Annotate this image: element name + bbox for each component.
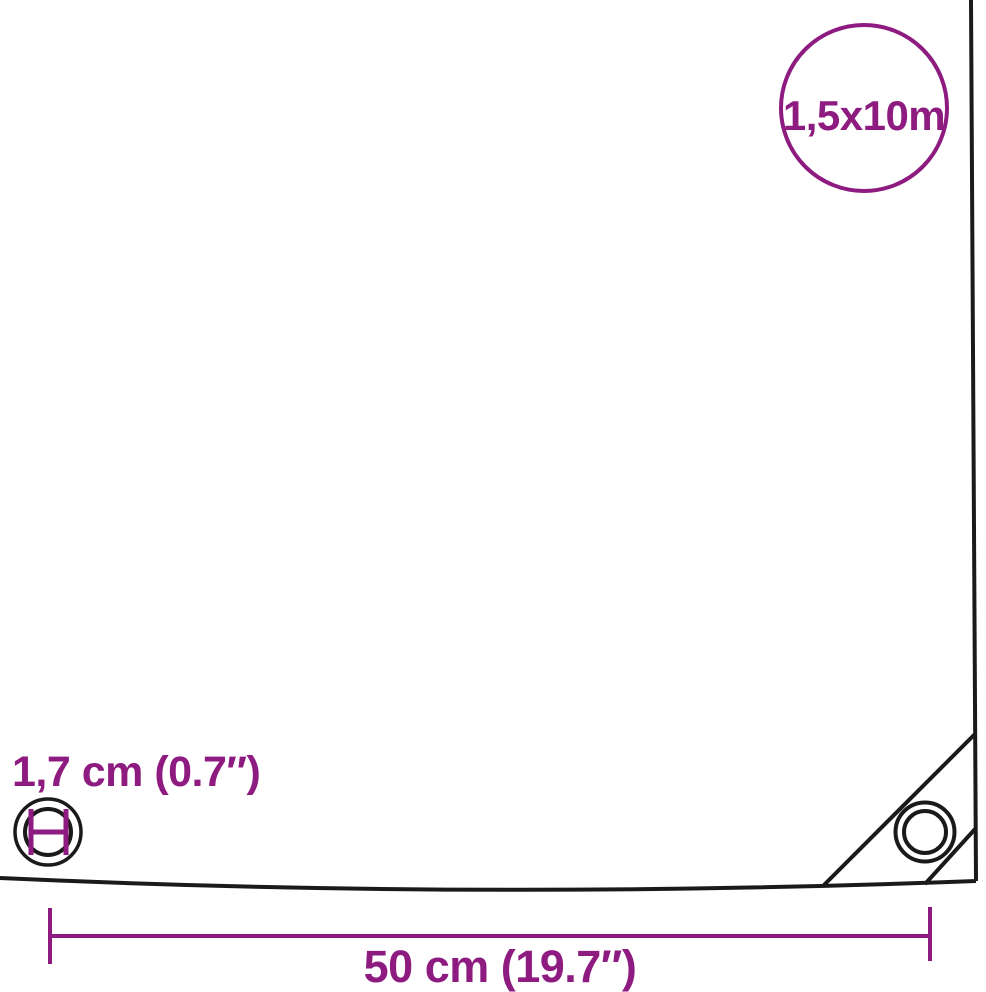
grommet-inner-ring bbox=[904, 811, 946, 853]
diameter-measure-marks bbox=[31, 809, 66, 855]
size-badge: 1,5x10m bbox=[781, 25, 947, 191]
corner-patch-inner-diagonal bbox=[925, 828, 976, 884]
corner-reinforcement-patch bbox=[824, 734, 976, 885]
tarp-dimension-drawing: 1,7 cm (0.7″) 1,5x10m 50 cm (19.7″) bbox=[0, 0, 986, 992]
size-badge-label: 1,5x10m bbox=[783, 92, 945, 139]
width-dimension: 50 cm (19.7″) bbox=[50, 907, 930, 992]
grommet-diameter-icon bbox=[15, 799, 81, 865]
grommet-diameter-label: 1,7 cm (0.7″) bbox=[12, 748, 260, 796]
grommet-icon bbox=[896, 803, 955, 862]
product-dimension-diagram: 1,7 cm (0.7″) 1,5x10m 50 cm (19.7″) bbox=[0, 0, 986, 992]
width-dimension-label: 50 cm (19.7″) bbox=[364, 941, 637, 992]
corner-patch-outer-diagonal bbox=[824, 734, 975, 885]
tarp-right-edge bbox=[971, 0, 976, 881]
